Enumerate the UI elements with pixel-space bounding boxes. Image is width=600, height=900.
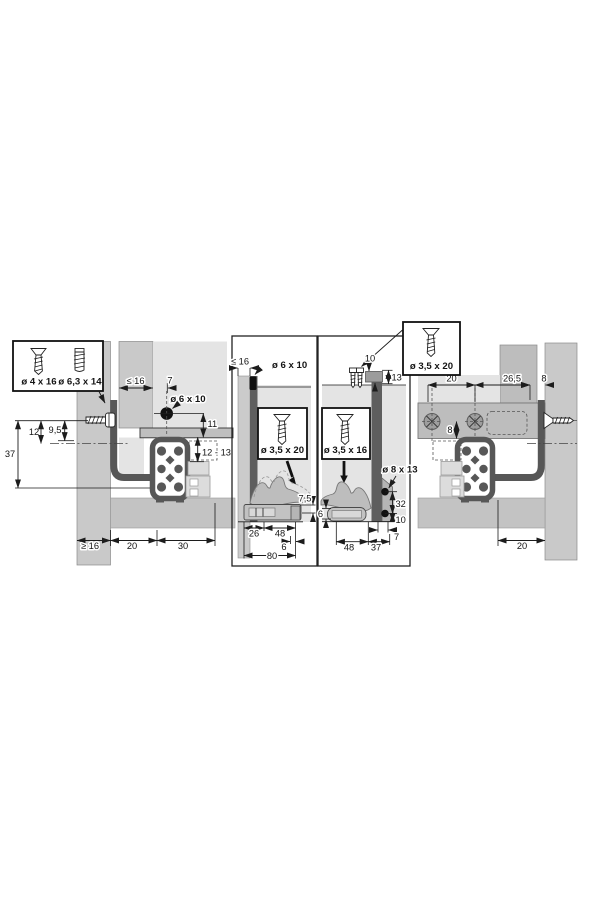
ball-bearing-icon	[174, 446, 183, 455]
top-hook-tab	[366, 372, 383, 383]
svg-text:8: 8	[447, 425, 452, 435]
runner-back-strip	[372, 382, 383, 522]
screw-spec-box: ø 3,5 x 16	[322, 408, 370, 459]
dimension-max16: ≤ 16	[231, 357, 259, 377]
hole-size-label: ø 6 x 10	[272, 360, 307, 371]
dimension-9-5: 9,5	[49, 421, 65, 441]
locking-device	[244, 505, 301, 521]
ball-bearing-icon	[157, 446, 166, 455]
svg-text:7: 7	[167, 376, 172, 386]
dimension-7-bottom: 7	[371, 522, 399, 542]
svg-text:≤ 16: ≤ 16	[231, 357, 249, 367]
svg-text:13: 13	[392, 373, 402, 383]
svg-text:11: 11	[208, 419, 218, 429]
dimension-26: 26	[249, 529, 259, 539]
locking-device	[328, 508, 367, 522]
dimension-37: 37	[5, 421, 18, 488]
mounting-screws	[350, 368, 364, 388]
dimension-12: 12	[29, 421, 41, 444]
screw-size-label: ø 3,5 x 20	[410, 361, 453, 372]
euro-screw-icon	[74, 349, 85, 372]
svg-text:37: 37	[5, 449, 15, 459]
installation-diagram: ø 4 x 16 ø 6,3 x 14 ø 6 x 10 37 12 9,5	[0, 0, 600, 900]
svg-text:10: 10	[365, 354, 375, 364]
right-section-view: 20 26,5 8 8 20 ø 3,5 x 20	[403, 322, 579, 560]
ball-bearing-icon	[174, 482, 183, 491]
bottom-dimensions-a: 26 48 6 80	[244, 522, 303, 561]
drawer-interior	[418, 375, 500, 403]
dimension-6: 6	[281, 542, 286, 552]
dimension-80: 80	[267, 551, 277, 561]
svg-text:7,5: 7,5	[299, 494, 312, 504]
ball-bearing-icon	[462, 446, 471, 455]
hole-size-label: ø 8 x 13	[382, 465, 417, 476]
plug-6x10	[250, 377, 257, 391]
leader-line	[255, 369, 260, 375]
svg-text:32: 32	[396, 499, 406, 509]
bottom-shelf	[111, 498, 236, 528]
technical-drawing-page: ø 4 x 16 ø 6,3 x 14 ø 6 x 10 37 12 9,5	[0, 0, 600, 900]
ball-bearing-icon	[462, 465, 470, 473]
panel-a-side-view: ≤ 16 ø 6 x 10 ø 3,5 x 20	[231, 336, 318, 566]
dimension-26-5: 26,5	[503, 374, 521, 384]
svg-text:12: 12	[29, 427, 39, 437]
screw-size-label: ø 3,5 x 16	[324, 445, 367, 456]
bottom-dimensions-b: 48 37	[336, 522, 389, 553]
dimension-48: 48	[275, 529, 285, 539]
svg-text:≤ 16: ≤ 16	[126, 376, 144, 386]
svg-text:9,5: 9,5	[49, 425, 62, 435]
dimension-48: 48	[344, 543, 354, 553]
hole-size-label: ø 6 x 10	[170, 394, 205, 405]
ball-bearing-icon	[479, 446, 488, 455]
runner-profile	[153, 440, 188, 503]
svg-text:12 - 13: 12 - 13	[202, 448, 231, 458]
screw-spec-box: ø 3,5 x 20	[258, 408, 307, 459]
ball-bearing-icon	[174, 465, 182, 473]
screw-size-label: ø 6,3 x 14	[58, 377, 102, 388]
dimension-37: 37	[371, 543, 381, 553]
ball-bearing-icon	[157, 465, 165, 473]
dimension-min16: ≥ 16	[81, 541, 99, 551]
dimension-13: 13	[382, 370, 402, 383]
ball-bearing-icon	[157, 482, 166, 491]
left-section-view: ø 4 x 16 ø 6,3 x 14 ø 6 x 10 37 12 9,5	[5, 341, 235, 565]
svg-text:20: 20	[517, 541, 527, 551]
cabinet-side-panel	[545, 343, 577, 560]
svg-text:6: 6	[318, 509, 323, 519]
dimension-30: 30	[178, 541, 188, 551]
dimension-8-top: 8	[541, 374, 546, 384]
svg-text:7: 7	[394, 532, 399, 542]
ball-bearing-icon	[479, 465, 487, 473]
ball-bearing-icon	[479, 482, 488, 491]
svg-text:10: 10	[396, 515, 406, 525]
screw-spec-box: ø 3,5 x 20	[403, 322, 460, 375]
screw-size-label: ø 3,5 x 20	[261, 445, 304, 456]
dimension-20: 20	[127, 541, 137, 551]
drawer-bottom-panel	[140, 428, 233, 438]
screw-size-label: ø 4 x 16	[21, 377, 56, 388]
